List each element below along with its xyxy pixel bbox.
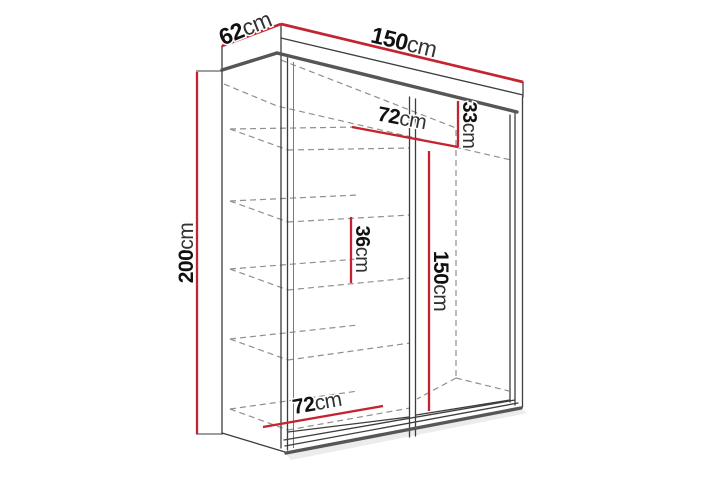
upper-shelf-height-label: 33cm	[458, 102, 480, 149]
shelf-side-edge	[230, 129, 288, 150]
bottom-front-edge	[286, 408, 521, 453]
dimension-width: 150cm	[281, 22, 523, 82]
dimension-upper-shelf-width: 72cm	[352, 102, 458, 147]
floor-back-edge	[417, 378, 456, 399]
width-dimension-label: 150cm	[369, 22, 440, 63]
top-slab-bottom-edge-left	[222, 53, 277, 70]
hanging-space-height-label: 150cm	[430, 251, 453, 312]
depth-dimension-label: 62cm	[215, 6, 275, 50]
dimension-depth: 62cm	[215, 6, 281, 50]
top-slab-bottom-edge-front	[277, 53, 517, 112]
shelf-side-edge	[230, 201, 288, 222]
shelf-side-edge	[230, 339, 288, 360]
dimension-hanging-space-height: 150cm	[429, 151, 453, 411]
height-dimension-label: 200cm	[175, 223, 198, 284]
shelf-side-edge	[230, 269, 288, 290]
dimension-shelf-spacing: 36cm	[351, 217, 373, 283]
shelf-spacing-label: 36cm	[351, 226, 373, 273]
shelf-front-edge	[288, 278, 410, 290]
shelf-front-edge	[288, 148, 410, 150]
bottom-panel-side-edge	[230, 409, 288, 430]
shelf-front-edge	[288, 343, 410, 360]
floor-back-edge	[456, 378, 509, 391]
shelf-front-edge	[288, 215, 410, 222]
upper-shelf-width-label: 72cm	[376, 102, 429, 134]
wardrobe-dimension-diagram: 62cm 150cm 200cm 33cm 72cm 36cm 150cm 72…	[0, 0, 720, 480]
dimension-upper-shelf-height: 33cm	[458, 101, 480, 148]
diagram-canvas: 62cm 150cm 200cm 33cm 72cm 36cm 150cm 72…	[0, 0, 720, 480]
top-panel-hidden-edge	[281, 60, 456, 128]
dimension-height: 200cm	[175, 71, 224, 434]
bottom-left-edge	[222, 433, 285, 452]
